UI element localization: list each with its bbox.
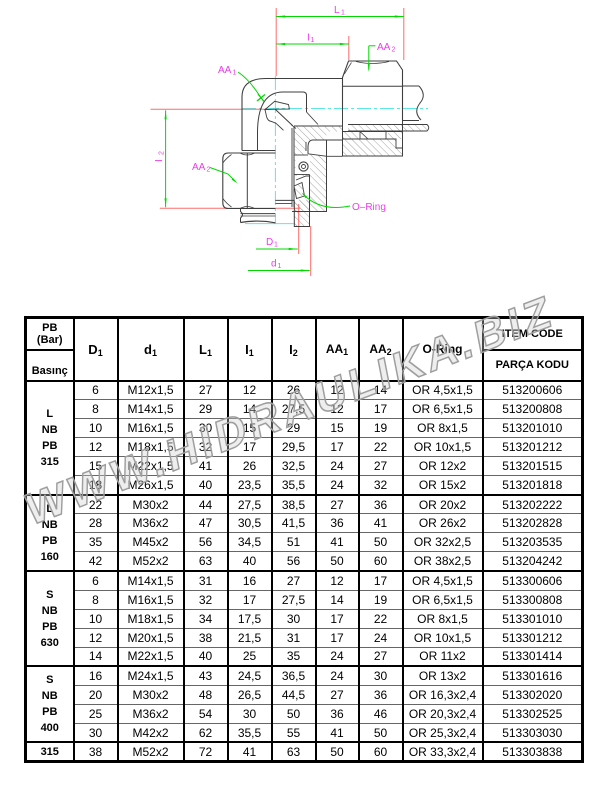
svg-text:2: 2 [207, 167, 211, 174]
svg-text:D: D [266, 237, 273, 248]
svg-text:AA: AA [218, 65, 232, 76]
svg-text:L: L [334, 5, 340, 16]
svg-text:I: I [154, 159, 165, 162]
svg-text:d: d [271, 259, 277, 270]
svg-text:1: 1 [341, 10, 345, 17]
svg-text:AA: AA [377, 42, 391, 53]
svg-text:O–Ring: O–Ring [352, 202, 386, 213]
svg-text:1: 1 [311, 37, 315, 44]
svg-text:2: 2 [159, 151, 166, 155]
svg-text:2: 2 [392, 47, 396, 54]
svg-text:1: 1 [278, 263, 282, 270]
svg-text:1: 1 [233, 70, 237, 77]
svg-text:AA: AA [192, 162, 206, 173]
svg-text:I: I [307, 33, 310, 44]
svg-text:1: 1 [274, 242, 278, 249]
